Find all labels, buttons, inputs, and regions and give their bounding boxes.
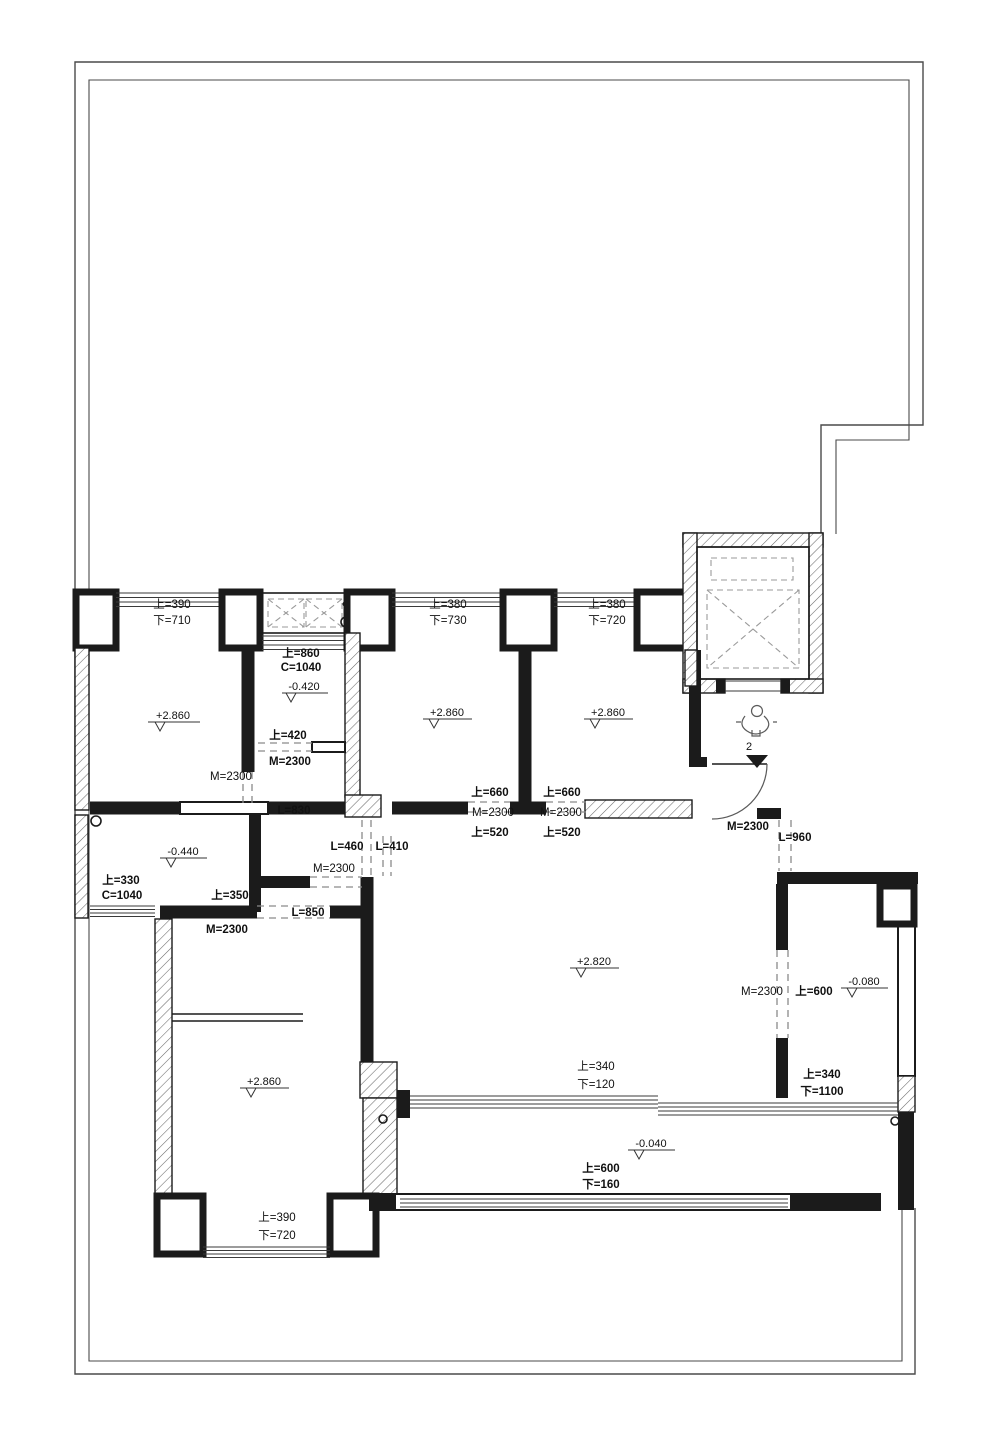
entry-door — [689, 757, 781, 819]
wall-stub — [312, 742, 345, 752]
svg-text:-0.040: -0.040 — [635, 1138, 666, 1150]
column — [503, 592, 554, 648]
door-label: M=2300 — [313, 863, 355, 875]
door-label: M=2300 — [210, 771, 252, 783]
level-marker-room-top-left: +2.860 — [148, 710, 200, 731]
entry-figure-symbol: 2 — [736, 706, 777, 769]
level-marker-room-bottom-left: +2.860 — [240, 1076, 289, 1097]
door-label: M=2300 — [472, 807, 514, 819]
door-label: 上=420 — [269, 728, 306, 742]
window-label: 上=340 — [577, 1060, 614, 1073]
column — [76, 592, 116, 648]
svg-text:+2.860: +2.860 — [247, 1076, 281, 1088]
window-bath-left — [90, 906, 155, 917]
door-label: M=2300 — [741, 986, 783, 998]
level-marker-living: +2.820 — [570, 956, 619, 977]
window-label: 上=380 — [588, 598, 625, 611]
flue-shaft — [260, 593, 351, 633]
window-south-right — [658, 1103, 898, 1115]
floor-plan-page: 2 — [0, 0, 1000, 1440]
column — [157, 1196, 203, 1254]
column — [222, 592, 260, 648]
door-label: 上=520 — [471, 825, 508, 839]
window-label: 下=720 — [588, 615, 625, 627]
svg-text:-0.080: -0.080 — [848, 976, 879, 988]
level-marker-room-top-mid: +2.860 — [423, 707, 472, 728]
door-label: M=2300 — [727, 821, 769, 833]
window-label: 上=390 — [258, 1211, 295, 1224]
pass-window-l830 — [180, 802, 268, 814]
door-label: 上=350 — [211, 888, 248, 902]
window-label: 上=860 — [282, 646, 319, 660]
interior-walls — [90, 633, 918, 1208]
elevator-counterweight — [711, 558, 793, 580]
svg-text:+2.860: +2.860 — [156, 710, 190, 722]
window-label: 上=330 — [102, 873, 139, 887]
entry-direction-arrow — [746, 755, 768, 768]
svg-text:+2.860: +2.860 — [430, 707, 464, 719]
opening-label: L=460 — [331, 841, 364, 853]
level-marker-bath-top: -0.420 — [282, 681, 328, 702]
door-label: 上=520 — [543, 825, 580, 839]
svg-text:+2.860: +2.860 — [591, 707, 625, 719]
site-boundary — [75, 62, 923, 1374]
column — [880, 886, 914, 924]
door-label: M=2300 — [269, 756, 311, 768]
svg-text:+2.820: +2.820 — [577, 956, 611, 968]
window-labels: 上=390 下=710 上=380 下=730 上=380 下=720 上=86… — [102, 598, 844, 1242]
opening-label: L=410 — [376, 841, 409, 853]
level-marker-balcony: -0.040 — [628, 1138, 675, 1159]
window-label: 上=600 — [582, 1161, 619, 1175]
level-marker-room-right: -0.080 — [841, 976, 888, 997]
balcony-side-wall — [898, 1112, 914, 1210]
door-label: M=2300 — [206, 924, 248, 936]
svg-text:-0.420: -0.420 — [288, 681, 319, 693]
level-marker-bath-left: -0.440 — [160, 846, 207, 867]
door-openings — [243, 743, 791, 1038]
window-label: 上=380 — [429, 598, 466, 611]
window-label: 下=720 — [258, 1230, 295, 1242]
window-label: 下=710 — [153, 615, 190, 627]
door-label: 上=600 — [795, 984, 832, 998]
window-label: 下=730 — [429, 615, 466, 627]
exterior-wall — [75, 815, 88, 918]
door-label: M=2300 — [540, 807, 582, 819]
opening-label: L=830 — [278, 805, 311, 817]
opening-label: L=850 — [292, 907, 325, 919]
svg-text:-0.440: -0.440 — [167, 846, 198, 858]
window-label: C=1040 — [281, 662, 322, 674]
window-label: C=1040 — [102, 890, 143, 902]
window-label: 下=1100 — [800, 1085, 843, 1098]
door-label: 上=660 — [543, 785, 580, 799]
entry-point-number: 2 — [746, 741, 752, 753]
window-bottom-left — [203, 1247, 330, 1258]
window-label: 下=120 — [577, 1079, 614, 1091]
exterior-wall — [75, 648, 89, 810]
elevator-shaft — [683, 533, 823, 693]
drain-pipe — [891, 1117, 899, 1125]
opening-label: L=960 — [779, 832, 812, 844]
floor-plan-canvas: 2 — [0, 0, 1000, 1440]
column — [637, 592, 688, 648]
window-label: 上=390 — [153, 598, 190, 611]
door-label: 上=660 — [471, 785, 508, 799]
window-south-left — [410, 1096, 658, 1108]
drain-pipe — [91, 816, 101, 826]
window-label: 上=340 — [803, 1067, 840, 1081]
window-label: 下=160 — [582, 1178, 619, 1191]
level-marker-room-top-right: +2.860 — [584, 707, 633, 728]
